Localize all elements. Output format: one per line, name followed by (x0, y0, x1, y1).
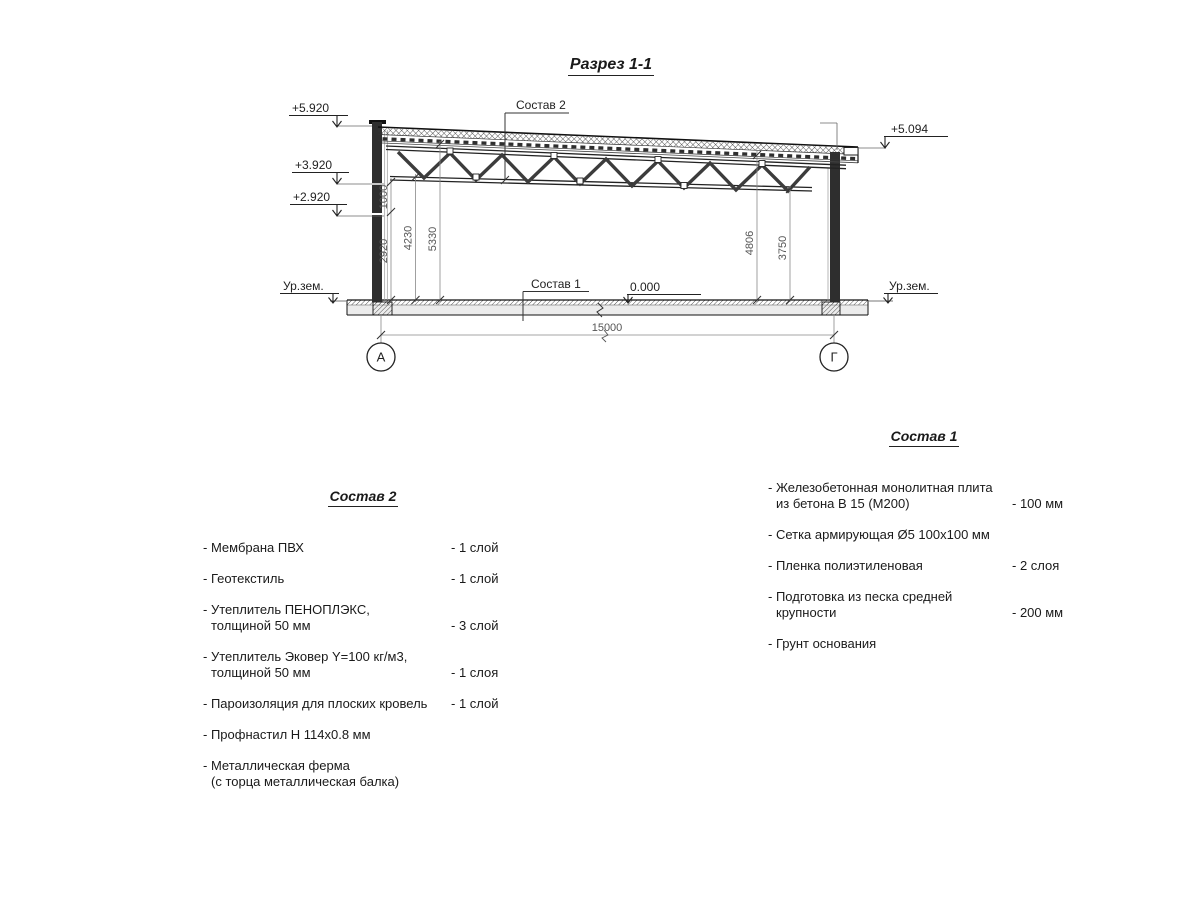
elevation-left-low: +2.920 (293, 190, 330, 204)
floor-composition-list: Состав 1 - Железобетонная монолитная пли… (768, 428, 1080, 667)
floor-composition-heading: Состав 1 (768, 428, 1080, 444)
elevation-left-top: +5.920 (292, 101, 329, 115)
roof-assembly (378, 123, 858, 163)
foundation-right (822, 302, 840, 315)
list-item: - Профнастил Н 114х0.8 мм (203, 727, 523, 743)
elevation-right-top: +5.094 (891, 122, 928, 136)
axis-markers: А Г (367, 343, 848, 371)
dim-4806: 4806 (744, 231, 756, 255)
roof-composition-list: Состав 2 - Мембрана ПВХ - 1 слой - Геоте… (203, 488, 523, 805)
column-right (828, 152, 840, 302)
axis-label-left: А (377, 350, 386, 365)
list-item: - Мембрана ПВХ - 1 слой (203, 540, 523, 556)
dim-3750: 3750 (777, 236, 789, 260)
drawing-title-text: Разрез 1-1 (568, 56, 654, 76)
drawing-sheet: Разрез 1-1 (0, 0, 1200, 900)
list-item: - Утеплитель Эковер Y=100 кг/м3, толщино… (203, 649, 523, 681)
list-item: - Пароизоляция для плоских кровель - 1 с… (203, 696, 523, 712)
axis-label-right: Г (830, 350, 837, 365)
dim-4230: 4230 (403, 226, 415, 250)
ground-level-label-right: Ур.зем. (889, 279, 930, 293)
elevation-left-mid: +3.920 (295, 158, 332, 172)
span-dimension: 15000 (377, 316, 838, 343)
list-item: - Пленка полиэтиленовая - 2 слоя (768, 558, 1080, 574)
list-item: - Утеплитель ПЕНОПЛЭКС, толщиной 50 мм -… (203, 602, 523, 634)
dim-2920: 2920 (378, 239, 390, 263)
list-item: - Подготовка из песка средней крупности … (768, 589, 1080, 621)
foundation-left (373, 302, 392, 315)
callout-roof-label: Состав 2 (516, 98, 566, 112)
roof-composition-heading: Состав 2 (203, 488, 523, 504)
roof-end-beam (844, 148, 858, 156)
list-item: - Металлическая ферма (с торца металличе… (203, 758, 523, 790)
floor-slab (330, 300, 893, 317)
dim-1000: 1000 (378, 185, 390, 209)
drawing-title: Разрез 1-1 (0, 56, 1200, 74)
list-item: - Геотекстиль - 1 слой (203, 571, 523, 587)
list-item: - Грунт основания (768, 636, 1080, 652)
list-item: - Сетка армирующая Ø5 100х100 мм (768, 527, 1080, 543)
dim-span: 15000 (592, 322, 623, 334)
callout-floor-label: Состав 1 (531, 277, 581, 291)
ground-level-label-left: Ур.зем. (283, 279, 324, 293)
column-left (369, 120, 387, 302)
dim-5330: 5330 (427, 227, 439, 251)
elevation-zero: 0.000 (630, 280, 660, 294)
list-item: - Железобетонная монолитная плита из бет… (768, 480, 1080, 512)
